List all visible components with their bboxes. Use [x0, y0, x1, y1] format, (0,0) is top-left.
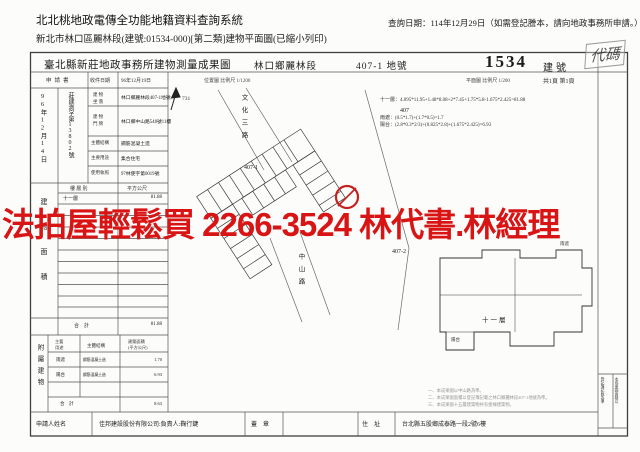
field-label-structure: 主體結構 [91, 140, 109, 146]
floorplan-scale: 平面圖 比例尺 1/200 [466, 77, 510, 84]
field-label-location: 建 物 坐 落 [93, 91, 103, 105]
annex-row1-use: 雨遮 [56, 357, 65, 363]
annex-total-value: 8.63 [132, 401, 162, 406]
formula-line-2: 雨遮：(0.5*1.7)+(1.7*0.5)=1.7 [380, 114, 444, 121]
north-reference-number: 731 [182, 96, 190, 102]
road-label-zhongshan: 中山路 [295, 253, 305, 307]
unit-floor-label: 十一層 [482, 314, 508, 324]
north-arrow-icon [171, 88, 180, 110]
annex-col-structure: 主體結構 [87, 343, 105, 349]
query-date: 查詢日期：114年12月29日（如需登記謄本，請向地政事務所申請。） [388, 17, 640, 29]
parcel-number: 407-1 地號 [356, 58, 408, 72]
formula-line-3: 陽台：(2.8*0.3*2/3)+(0.825*2.8)+(1.675*2.42… [380, 121, 491, 128]
margin-note-col1: 本成果圖面積以 [615, 377, 620, 427]
note-line-1: 一、本成果圖以中山路為準。 [428, 388, 484, 394]
annex-row2-structure: 鋼筋混凝土造 [83, 373, 106, 378]
annex-side-label: 附屬建物 [34, 344, 44, 408]
annex-row1-structure: 鋼筋混凝土造 [83, 358, 106, 363]
address-label: 住 址 [362, 419, 380, 428]
field-label-license: 使用執照 [91, 170, 109, 176]
seal-label: 蓋 章 [251, 419, 269, 428]
formula-line-1: 十一層：4.095*11.95+1.48*8.08+2*7.45+1.75*5.… [380, 96, 525, 103]
building-number: 1534 [485, 52, 527, 72]
annex-total-label: 合 計 [60, 401, 74, 407]
code-stamp: 代碼 [584, 40, 626, 70]
building-number-label: 建號 [543, 59, 569, 74]
annex-col-area: 建築面積 (平方公尺) [128, 339, 148, 351]
applicant-name-label: 申請人姓名 [36, 419, 66, 428]
form-title: 臺北縣新莊地政事務所建物測量成果圖 [44, 57, 231, 72]
survey-date-vertical: 96年12月14日 [37, 93, 47, 179]
watermark-text: 法拍屋輕鬆買 2266-3524 林代書.林經理 [2, 198, 559, 246]
field-label-address: 建 物 門 牌 [93, 113, 103, 127]
floor-total-value: 81.88 [130, 322, 162, 327]
unit-floor-plan [440, 250, 592, 350]
receive-date-value: 96年12月19日 [121, 77, 151, 84]
location-map-scale: 位置圖 比例尺 1/1200 [204, 77, 250, 84]
area-col-header: 平方公尺 [127, 185, 147, 192]
annex-col-use: 主要 用途 [55, 339, 63, 351]
annex-row2-use: 陽台 [56, 372, 65, 378]
annex-row1-area: 1.70 [132, 357, 162, 362]
note-line-3: 三、本成果圖十五層建築物共有壹棟建築物。 [428, 402, 514, 408]
lot-label-407-2: 407-2 [392, 249, 406, 255]
page-count: 共1頁 第1頁 [543, 76, 575, 85]
annex-row2-area: 6.93 [132, 372, 162, 377]
floor-total-label: 合 計 [74, 322, 89, 329]
field-value-structure: 鋼筋混凝土造 [121, 140, 150, 147]
field-label-use: 主要用途 [91, 155, 109, 161]
lot-label-407-1: 407-1 [244, 165, 258, 171]
canopy-label: 雨遮 [560, 241, 569, 247]
address-value: 台北縣五股鄉成泰路一段2號6樓 [402, 419, 486, 428]
field-value-license: 97林使字第0019號 [121, 170, 159, 177]
road-label-wenhua: 文化三路 [238, 94, 248, 168]
field-value-location: 林口鄉麗林段407-1地號 [121, 94, 171, 101]
field-value-address: 林口鄉中山路548號11樓 [121, 118, 171, 125]
note-line-2: 二、本成果圖面積以登記簿記載之林口鄉麗林段407-1地號為準。 [428, 395, 550, 401]
application-label: 申請書 [46, 76, 72, 84]
district-label: 林口鄉麗林段 [254, 58, 317, 72]
margin-note-col2: 登記簿記載為準 [601, 377, 606, 427]
balcony-label: 陽台 [451, 337, 460, 343]
floor-col-header: 樓 層 別 [70, 185, 88, 192]
document-subtitle: 新北市林口區麗林段(建號:01534-000)[第二類]建物平面圖(已縮小列印) [36, 31, 327, 45]
system-title: 北北桃地政電傳全功能地籍資料查詢系統 [36, 12, 243, 28]
applicant-name-value: 佳邦建設股份有限公司:負責人:鞠行鍵 [99, 419, 198, 428]
field-value-use: 集合住宅 [121, 155, 140, 162]
receive-date-label: 收件日期 [90, 77, 110, 84]
file-number-vertical: 莊建測字第13802號 [66, 92, 75, 180]
